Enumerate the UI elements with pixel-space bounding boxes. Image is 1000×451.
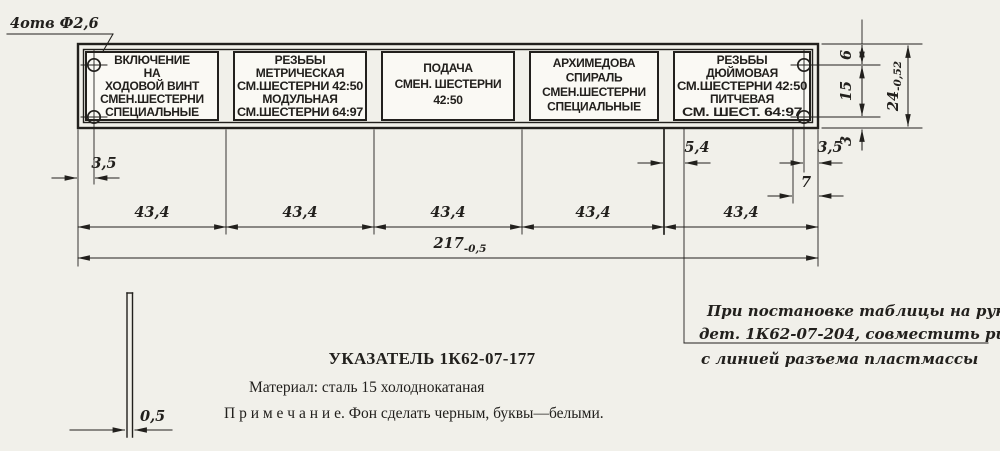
dim-thickness: 0,5: [140, 408, 165, 425]
panel-2-line-2: МЕТРИЧЕСКАЯ: [256, 66, 344, 80]
panel-2-line-5: СМ.ШЕСТЕРНИ 64:97: [237, 105, 364, 119]
material-note: Материал: сталь 15 холоднокатаная: [249, 379, 484, 396]
panel-4-line-3: СМЕН.ШЕСТЕРНИ: [542, 85, 646, 99]
panel-4-line-4: СПЕЦИАЛЬНЫЕ: [547, 100, 641, 114]
panel-3-line-2: СМЕН. ШЕСТЕРНИ: [395, 77, 502, 91]
dim-total-width: 217-0,5: [433, 235, 487, 255]
dim-top-to-hole: 6: [838, 50, 855, 60]
panel-5-line-5: СМ. ШЕСТ. 64:97: [682, 105, 803, 119]
assembly-note-line-1: При постановке таблицы на рукоятку: [706, 302, 1000, 320]
drawing-sheet: 4отв Ф2,6 ВКЛЮЧЕНИЕ НА ХОДОВОЙ ВИНТ СМЕН…: [0, 0, 1000, 451]
dim-segment-4: 43,4: [575, 204, 610, 221]
dim-riska-offset: 5,4: [684, 139, 709, 156]
panel-3-line-1: ПОДАЧА: [423, 61, 473, 75]
panel-4-line-2: СПИРАЛЬ: [566, 71, 623, 85]
panel-2-line-3: СМ.ШЕСТЕРНИ 42:50: [237, 79, 364, 93]
assembly-note-line-3: с линией разъема пластмассы: [701, 350, 978, 368]
panel-2-line-1: РЕЗЬБЫ: [275, 53, 326, 67]
color-note: П р и м е ч а н и е. Фон сделать черным,…: [224, 405, 604, 422]
dim-hole-to-hole: 15: [838, 81, 855, 101]
dim-segment-1: 43,4: [134, 204, 169, 221]
panel-1-line-4: СМЕН.ШЕСТЕРНИ: [100, 92, 204, 106]
panel-5-line-1: РЕЗЬБЫ: [717, 53, 768, 67]
dim-left-edge-to-hole: 3,5: [91, 155, 116, 172]
panel-1-line-2: НА: [144, 66, 161, 80]
assembly-note-line-2: дет. 1К62-07-204, совместить риску: [699, 325, 1000, 343]
dim-right-seven: 7: [801, 174, 811, 191]
small-dimensions: 3,5 5,4 3,5 7: [52, 139, 843, 196]
dim-total-height: 24-0,52: [885, 61, 904, 112]
hole-callout-label: 4отв Ф2,6: [10, 15, 99, 32]
panel-4-line-1: АРХИМЕДОВА: [553, 56, 636, 70]
panel-5-line-2: ДЮЙМОВАЯ: [706, 65, 778, 80]
height-dimensions: 6 15 3 24-0,52: [838, 46, 908, 151]
panel-1-line-5: СПЕЦИАЛЬНЫЕ: [105, 105, 199, 119]
technical-drawing: 4отв Ф2,6 ВКЛЮЧЕНИЕ НА ХОДОВОЙ ВИНТ СМЕН…: [0, 0, 1000, 451]
nameplate: ВКЛЮЧЕНИЕ НА ХОДОВОЙ ВИНТ СМЕН.ШЕСТЕРНИ …: [78, 44, 818, 128]
footer: УКАЗАТЕЛЬ 1К62-07-177 Материал: сталь 15…: [224, 349, 604, 422]
dim-segment-5: 43,4: [723, 204, 758, 221]
thickness-view: 0,5: [70, 293, 172, 437]
panel-1-line-1: ВКЛЮЧЕНИЕ: [114, 53, 190, 67]
panel-5-line-4: ПИТЧЕВАЯ: [710, 92, 774, 106]
drawing-title: УКАЗАТЕЛЬ 1К62-07-177: [328, 349, 535, 368]
panel-5-line-3: СМ.ШЕСТЕРНИ 42:50: [677, 79, 808, 93]
assembly-note: При постановке таблицы на рукоятку дет. …: [684, 302, 1000, 368]
width-dimensions: 43,4 43,4 43,4 43,4 43,4 217-0,5: [78, 204, 818, 258]
panel-3-line-3: 42:50: [433, 93, 463, 107]
dim-segment-3: 43,4: [430, 204, 465, 221]
dim-hole-to-bottom: 3: [838, 136, 855, 146]
panel-1-line-3: ХОДОВОЙ ВИНТ: [105, 78, 200, 93]
panel-2-line-4: МОДУЛЬНАЯ: [262, 92, 337, 106]
dim-segment-2: 43,4: [282, 204, 317, 221]
